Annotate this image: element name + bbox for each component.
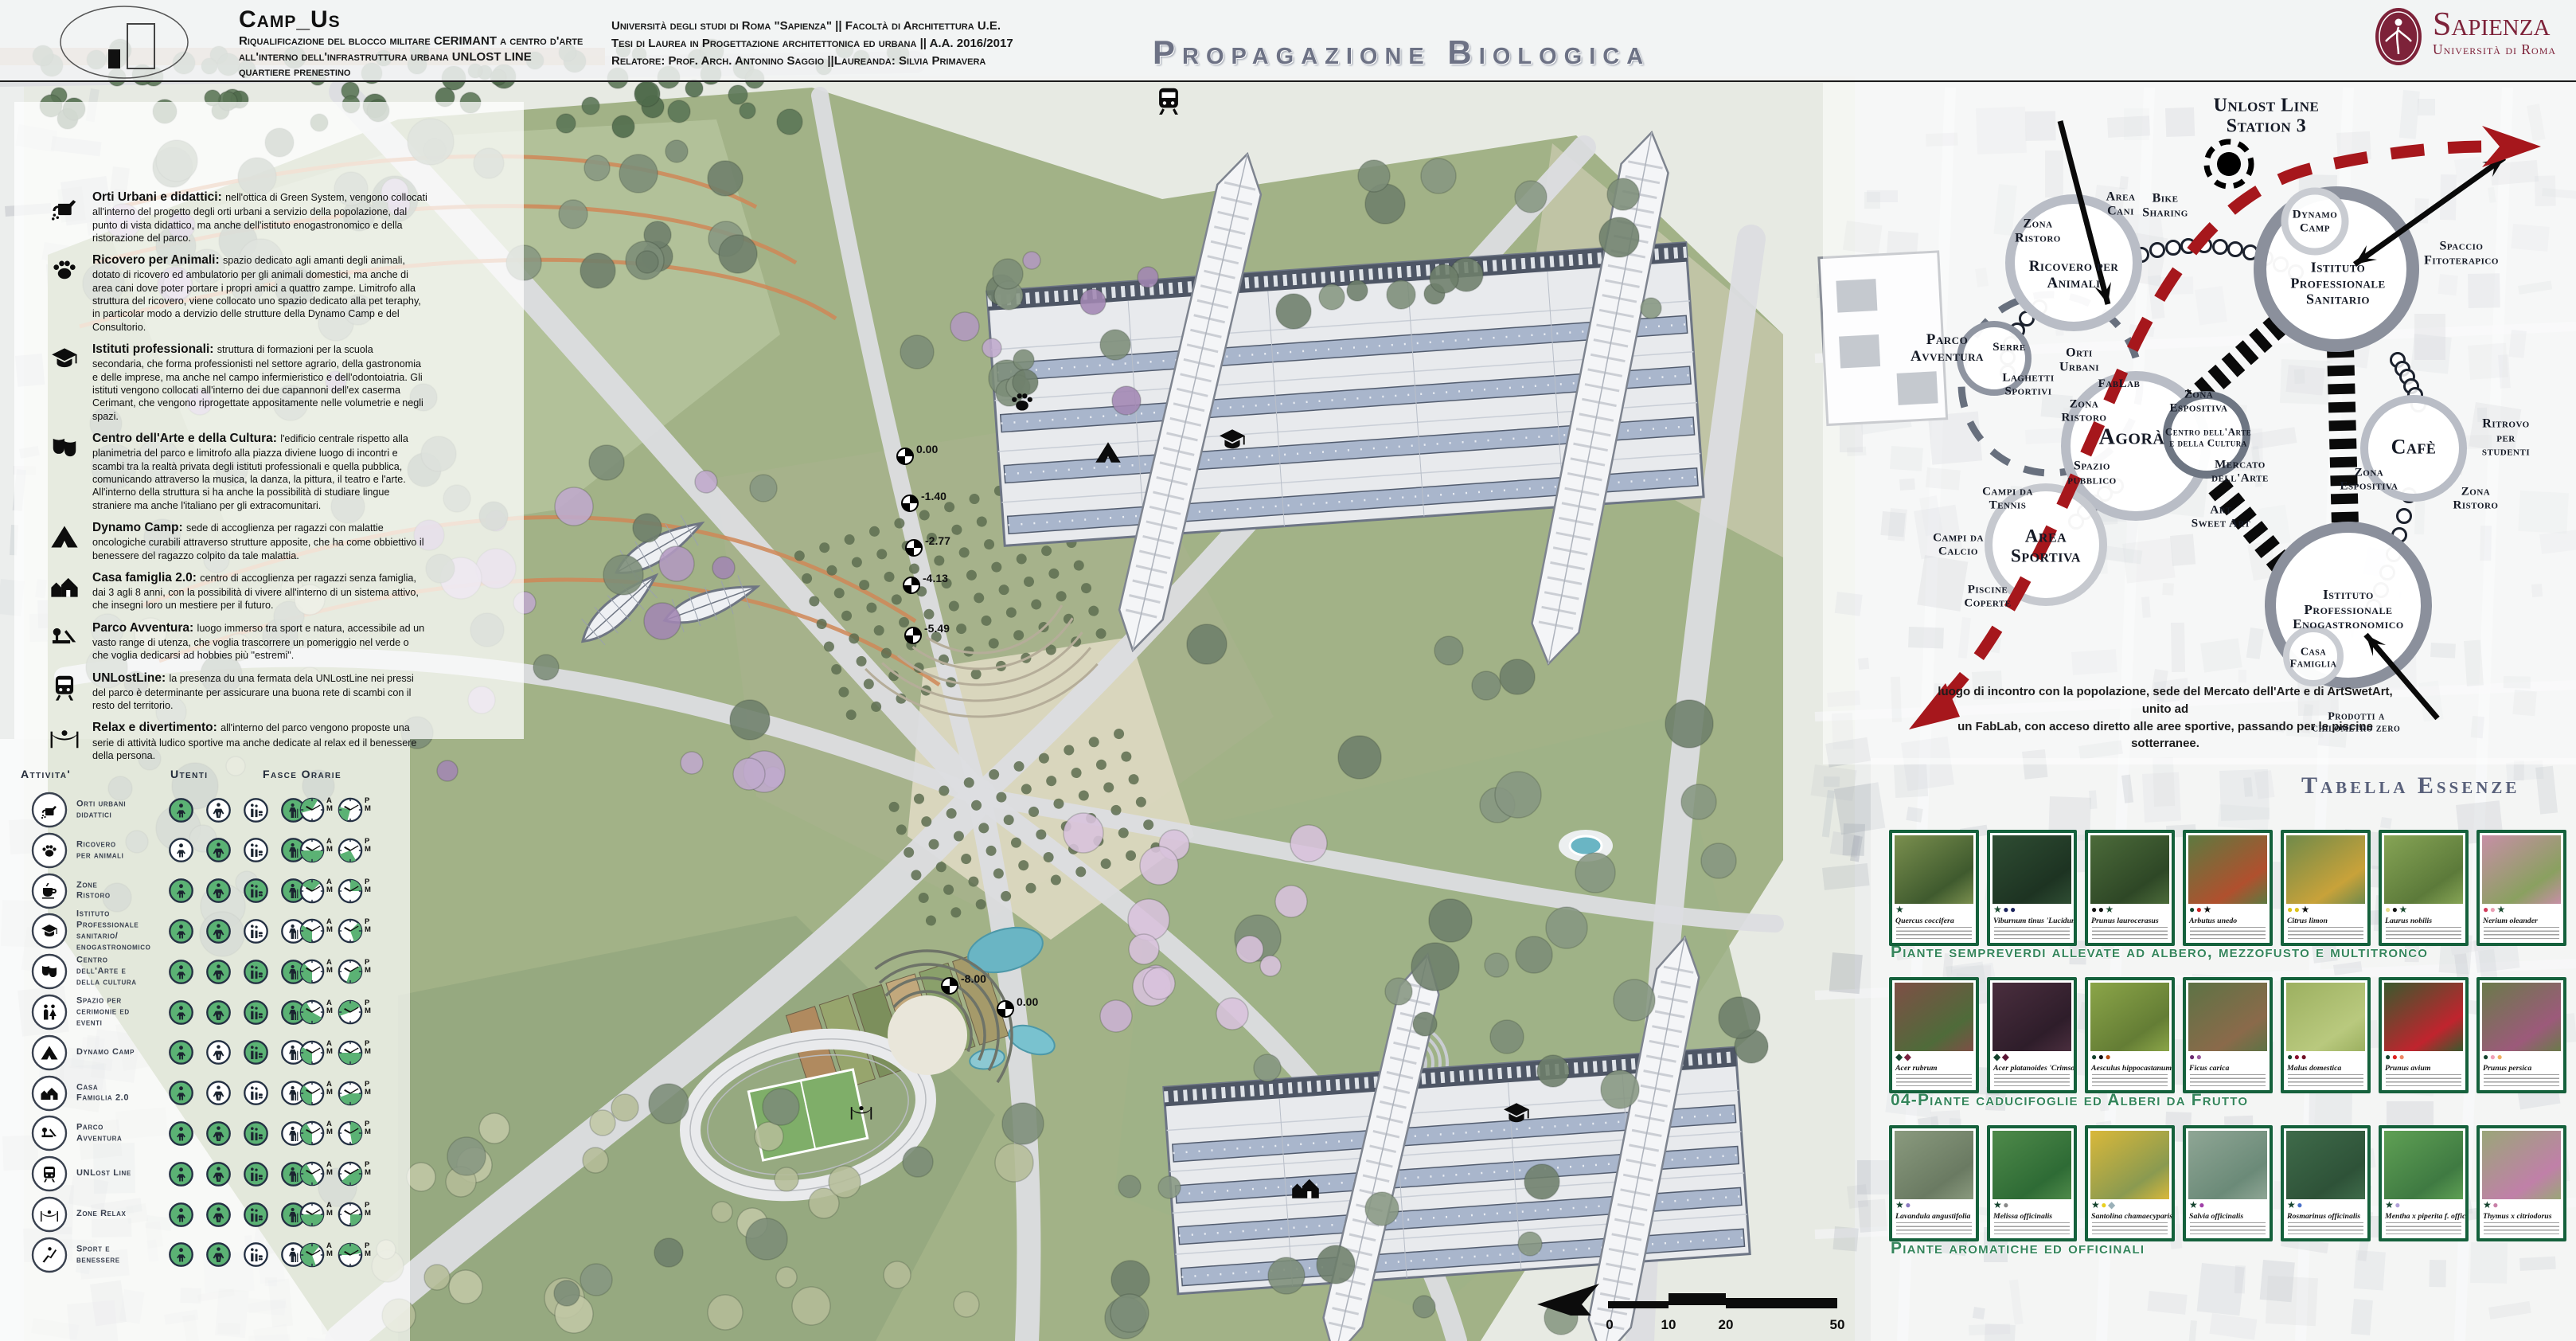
trait-icon: ● (2196, 904, 2203, 915)
pm-label: P M (365, 918, 371, 934)
plant-trait-icons: ●● (2186, 1051, 2270, 1064)
plant-photo (1992, 1131, 2071, 1199)
trait-icon: ● (2483, 904, 2490, 915)
plant-name: Arbutus unedo (2186, 917, 2270, 925)
trait-icon: ● (2492, 1199, 2500, 1210)
trait-icon: ● (2497, 1051, 2504, 1062)
trait-icon: ★ (2091, 1199, 2101, 1210)
am-clock-icon (299, 837, 326, 868)
tent-icon (30, 1034, 68, 1076)
trait-icon: ★ (2497, 904, 2507, 915)
plant-trait-icons: ★● (1990, 1199, 2074, 1212)
adult-user-icon (206, 1040, 231, 1069)
am-clock-icon (299, 999, 326, 1030)
plant-trait-icons: ●●★ (2088, 904, 2172, 917)
plant-details-text (1994, 1074, 2070, 1087)
cup-icon (30, 872, 68, 914)
am-label: A M (326, 1161, 333, 1177)
pm-label: P M (365, 1161, 371, 1177)
adult-user-icon (206, 838, 231, 866)
am-label: A M (326, 1120, 333, 1136)
family-user-icon (244, 1202, 268, 1231)
plant-card: ★●Thymus x citriodorus (2476, 1125, 2566, 1241)
legend-item: Istituti professionali: struttura di for… (49, 342, 427, 423)
plant-trait-icons: ◆◆ (1892, 1051, 1976, 1064)
trait-icon: ● (2294, 1051, 2301, 1062)
plant-trait-icons: ★● (1892, 1199, 1976, 1212)
pm-clock-icon (337, 1160, 364, 1191)
plant-name: Prunus avium (2382, 1064, 2465, 1073)
plant-details-text (2484, 927, 2559, 940)
trait-icon: ● (2091, 904, 2098, 915)
plant-details-text (2092, 1074, 2168, 1087)
scale-0: 0 (1606, 1317, 1613, 1333)
plant-trait-icons: ★●● (1990, 904, 2074, 917)
plant-photo (2188, 835, 2267, 904)
family-user-icon (244, 798, 268, 827)
legend-item-title: Parco Avventura: (92, 621, 197, 635)
scale-bar: 0 10 20 50 (1532, 1280, 1922, 1338)
plant-details-text (2092, 927, 2168, 940)
child-user-icon (169, 1242, 193, 1271)
am-label: A M (326, 797, 333, 813)
trait-icon: ● (2385, 1051, 2392, 1062)
am-clock-icon (299, 1201, 326, 1232)
sapienza-logo-icon (2374, 6, 2423, 67)
trait-icon: ● (2098, 1051, 2106, 1062)
legend-item-title: UNLostLine: (92, 671, 169, 685)
plant-photo (2482, 835, 2561, 904)
trait-icon: ◆ (1904, 1051, 1913, 1062)
activity-label: Ricovero per animali (76, 839, 166, 862)
sapienza-subtitle: Università di Roma (2433, 41, 2556, 58)
adult-user-icon (206, 1242, 231, 1271)
trait-icon: ★ (1993, 1199, 2003, 1210)
pm-label: P M (365, 999, 371, 1015)
pm-label: P M (365, 1081, 371, 1097)
am-clock-icon (299, 1160, 326, 1191)
child-user-icon (169, 960, 193, 988)
plant-trait-icons: ●●● (2382, 1051, 2465, 1064)
trait-icon: ★ (2483, 1199, 2492, 1210)
trait-icon: ● (2199, 1199, 2206, 1210)
plant-details-text (2484, 1222, 2559, 1235)
activity-label: UNLost Line (76, 1168, 166, 1179)
plant-trait-icons: ★● (2284, 1199, 2367, 1212)
legend-item-title: Orti Urbani e didattici: (92, 190, 225, 204)
plant-card: ★●◆Santolina chamaecyparissus (2085, 1125, 2175, 1241)
am-clock-icon (299, 958, 326, 989)
am-label: A M (326, 1242, 333, 1258)
university-line-2: Tesi di Laurea in Progettazione architet… (611, 35, 1185, 53)
adult-user-icon (206, 798, 231, 827)
plant-name: Salvia officinalis (2186, 1212, 2270, 1221)
plant-trait-icons: ●●● (2480, 1051, 2563, 1064)
plant-name: Aesculus hippocastanum (2088, 1064, 2172, 1073)
activity-label: Istituto Professionale sanitario/ enogas… (76, 909, 166, 953)
plant-trait-icons: ●●● (2088, 1051, 2172, 1064)
am-label: A M (326, 959, 333, 975)
svg-text:-2.77: -2.77 (925, 534, 950, 547)
pm-clock-icon (337, 1120, 364, 1151)
am-label: A M (326, 1040, 333, 1056)
trait-icon: ★ (1895, 904, 1905, 915)
pm-clock-icon (337, 958, 364, 989)
am-clock-icon (299, 1080, 326, 1111)
plant-card: ●●Ficus carica (2183, 977, 2273, 1093)
trait-icon: ◆ (2108, 1199, 2117, 1210)
plant-photo (1992, 983, 2071, 1051)
masks-icon (30, 952, 68, 995)
legend-item-body: Parco Avventura: luogo immerso tra sport… (92, 620, 427, 663)
trait-icon: ● (2490, 1051, 2497, 1062)
family-user-icon (244, 1040, 268, 1069)
trait-icon: ◆ (1993, 1051, 2002, 1062)
plant-photo (2090, 1131, 2169, 1199)
plant-photo (2090, 835, 2169, 904)
plant-photo (1895, 983, 1973, 1051)
pm-clock-icon (337, 1080, 364, 1111)
trait-icon: ◆ (1895, 1051, 1904, 1062)
trait-icon: ● (2297, 1199, 2304, 1210)
trait-icon: ● (2010, 904, 2017, 915)
plant-details-text (2386, 927, 2461, 940)
pm-label: P M (365, 1040, 371, 1056)
child-user-icon (169, 1000, 193, 1029)
plant-trait-icons: ●●★ (2284, 904, 2367, 917)
plant-card: ★●Melissa officinalis (1987, 1125, 2077, 1241)
family-user-icon (244, 960, 268, 988)
plant-card: ●●●Malus domestica (2281, 977, 2371, 1093)
plant-trait-icons: ★ (1892, 904, 1976, 917)
adult-user-icon (206, 960, 231, 988)
plant-name: Quercus coccifera (1892, 917, 1976, 925)
trait-icon: ● (2287, 904, 2294, 915)
plant-card: ★●Salvia officinalis (2183, 1125, 2273, 1241)
family-user-icon (244, 1242, 268, 1271)
am-label: A M (326, 838, 333, 854)
gradcap-icon (30, 912, 68, 954)
am-label: A M (326, 1081, 333, 1097)
houses-icon (49, 570, 81, 612)
plant-photo (2188, 1131, 2267, 1199)
legend-item: Dynamo Camp: sede di accoglienza per rag… (49, 520, 427, 562)
activity-label: Casa Famiglia 2.0 (76, 1082, 166, 1104)
activity-label: Zone Relax (76, 1209, 166, 1220)
train-icon (30, 1155, 68, 1197)
park-icon (30, 1114, 68, 1156)
paw-icon (49, 252, 81, 334)
plant-details-text (1896, 1222, 1972, 1235)
child-user-icon (169, 1081, 193, 1109)
trait-icon: ● (2385, 904, 2392, 915)
activity-label: Dynamo Camp (76, 1047, 166, 1058)
plant-name: Rosmarinus officinalis (2284, 1212, 2367, 1221)
plant-trait-icons: ★● (2480, 1199, 2563, 1212)
trait-icon: ● (2301, 1051, 2309, 1062)
trait-icon: ★ (2287, 1199, 2297, 1210)
legend-item-title: Casa famiglia 2.0: (92, 571, 200, 584)
pm-clock-icon (337, 837, 364, 868)
activities-header: Fasce Orarie (263, 768, 342, 780)
svg-text:-1.40: -1.40 (921, 490, 946, 502)
plant-name: Laurus nobilis (2382, 917, 2465, 925)
legend-item: Casa famiglia 2.0: centro di accoglienza… (49, 570, 427, 612)
plant-card: ★●Lavandula angustifolia (1889, 1125, 1979, 1241)
plant-name: Acer platanoides 'Crimson King' (1990, 1064, 2074, 1073)
university-line-3: Relatore: Prof. Arch. Antonino Saggio ||… (611, 53, 1185, 70)
plant-card: ●●●Aesculus hippocastanum (2085, 977, 2175, 1093)
adult-user-icon (206, 1081, 231, 1109)
am-label: A M (326, 918, 333, 934)
plant-photo (2188, 983, 2267, 1051)
plant-card: ★●Mentha x piperita f. officinalis (2379, 1125, 2469, 1241)
legend-item: UNLostLine: la presenza du una fermata d… (49, 670, 427, 713)
pm-clock-icon (337, 878, 364, 909)
trait-icon: ★ (2106, 904, 2115, 915)
plant-photo (2384, 835, 2463, 904)
trait-icon: ● (2189, 1051, 2196, 1062)
sapienza-name: Sapienza (2433, 10, 2556, 41)
gradcap-icon (49, 342, 81, 423)
am-clock-icon (299, 1120, 326, 1151)
trait-icon: ★ (2189, 1199, 2199, 1210)
plant-card: ●●★Citrus limon (2281, 830, 2371, 946)
plant-trait-icons: ●●● (2284, 1051, 2367, 1064)
legend-item-body: Centro dell'Arte e della Cultura: l'edif… (92, 431, 427, 512)
plant-trait-icons: ★●◆ (2088, 1199, 2172, 1212)
plant-details-text (2288, 1222, 2363, 1235)
child-user-icon (169, 1202, 193, 1231)
activities-table: Attivita'UtentiFasce Orarie Orti urbani … (14, 766, 392, 1308)
trait-icon: ★ (2399, 904, 2409, 915)
plant-trait-icons: ★● (2382, 1199, 2465, 1212)
legend-item: Orti Urbani e didattici: nell'ottica di … (49, 190, 427, 244)
trait-icon: ● (2003, 1199, 2010, 1210)
legend-item-body: Dynamo Camp: sede di accoglienza per rag… (92, 520, 427, 562)
paw-icon (30, 831, 68, 874)
plant-name: Viburnum tinus 'Lucidum' (1990, 917, 2074, 925)
family-user-icon (244, 1162, 268, 1190)
legend-item: Relax e divertimento: all'interno del pa… (49, 720, 427, 762)
family-user-icon (244, 838, 268, 866)
trait-icon: ★ (1993, 904, 2003, 915)
child-user-icon (169, 878, 193, 907)
plant-photo (2384, 1131, 2463, 1199)
plant-name: Mentha x piperita f. officinalis (2382, 1212, 2465, 1221)
legend-item-title: Ricovero per Animali: (92, 253, 223, 267)
plant-photo (2090, 983, 2169, 1051)
child-user-icon (169, 1121, 193, 1150)
plant-name: Prunus persica (2480, 1064, 2563, 1073)
plant-details-text (2484, 1074, 2559, 1087)
svg-text:0.00: 0.00 (1017, 995, 1038, 1008)
plant-photo (2286, 1131, 2365, 1199)
species-table-title: Tabella Essenze (2301, 772, 2519, 800)
trait-icon: ● (2483, 1051, 2490, 1062)
am-clock-icon (299, 917, 326, 948)
pm-label: P M (365, 878, 371, 894)
plant-photo (2384, 983, 2463, 1051)
plant-details-text (2288, 1074, 2363, 1087)
plant-name: Ficus carica (2186, 1064, 2270, 1073)
sport-icon (30, 1236, 68, 1278)
activity-label: Parco Avventura (76, 1123, 166, 1145)
plant-details-text (2092, 1222, 2168, 1235)
plant-card: ★●Rosmarinus officinalis (2281, 1125, 2371, 1241)
trait-icon: ● (2098, 904, 2106, 915)
legend-item-body: Casa famiglia 2.0: centro di accoglienza… (92, 570, 427, 612)
child-user-icon (169, 798, 193, 827)
legend-item-body: Ricovero per Animali: spazio dedicato ag… (92, 252, 427, 334)
plant-trait-icons: ★● (2186, 1199, 2270, 1212)
pm-clock-icon (337, 796, 364, 827)
trait-icon: ● (2399, 1051, 2406, 1062)
species-row-caption-3: Piante aromatiche ed officinali (1891, 1239, 2145, 1258)
legend-item: Parco Avventura: luogo immerso tra sport… (49, 620, 427, 663)
plant-name: Acer rubrum (1892, 1064, 1976, 1073)
plant-trait-icons: ●●★ (2382, 904, 2465, 917)
am-clock-icon (299, 1039, 326, 1070)
header-divider (0, 80, 2576, 82)
adult-user-icon (206, 1000, 231, 1029)
plant-trait-icons: ●●★ (2186, 904, 2270, 917)
svg-text:0.00: 0.00 (916, 443, 938, 455)
legend-item-title: Centro dell'Arte e della Cultura: (92, 432, 280, 445)
legend-item-title: Istituti professionali: (92, 342, 217, 356)
child-user-icon (169, 1162, 193, 1190)
family-user-icon (244, 1121, 268, 1150)
trait-icon: ● (1905, 1199, 1912, 1210)
pm-clock-icon (337, 1039, 364, 1070)
species-table: Tabella Essenze Piante sempreverdi allev… (1889, 764, 2576, 1341)
plant-details-text (2386, 1222, 2461, 1235)
train-icon (49, 670, 81, 713)
adult-user-icon (206, 1202, 231, 1231)
plant-card: ●●★Prunus laurocerasus (2085, 830, 2175, 946)
plant-name: Nerium oleander (2480, 917, 2563, 925)
pm-label: P M (365, 1202, 371, 1218)
pm-label: P M (365, 1120, 371, 1136)
child-user-icon (169, 838, 193, 866)
child-user-icon (169, 919, 193, 948)
trait-icon: ● (2392, 1051, 2399, 1062)
plant-card: ●●●Prunus persica (2476, 977, 2566, 1093)
masks-icon (49, 431, 81, 512)
trait-icon: ● (2392, 904, 2399, 915)
family-user-icon (244, 1081, 268, 1109)
trait-icon: ● (2294, 904, 2301, 915)
pm-clock-icon (337, 917, 364, 948)
watering-icon (30, 791, 68, 833)
pm-label: P M (365, 838, 371, 854)
park-icon (49, 620, 81, 663)
couple-icon (30, 993, 68, 1035)
activity-label: Sport e benessere (76, 1244, 166, 1266)
plant-name: Santolina chamaecyparissus (2088, 1212, 2172, 1221)
plant-card: ●●★Laurus nobilis (2379, 830, 2469, 946)
presentation-board: 0.00 -1.40 -2.77 -4.13 -5.49 -8.00 0.0 (0, 0, 2576, 1341)
plant-details-text (2190, 1074, 2266, 1087)
plant-details-text (1896, 927, 1972, 940)
program-legend: Orti Urbani e didattici: nell'ottica di … (49, 190, 427, 770)
plant-card: ●●★Arbutus unedo (2183, 830, 2273, 946)
legend-item: Ricovero per Animali: spazio dedicato ag… (49, 252, 427, 334)
svg-text:-5.49: -5.49 (924, 622, 950, 635)
plant-photo (1895, 835, 1973, 904)
plant-trait-icons: ◆◆ (1990, 1051, 2074, 1064)
activity-label: Zone Ristoro (76, 880, 166, 902)
plant-details-text (2288, 927, 2363, 940)
trait-icon: ● (2003, 904, 2010, 915)
pm-clock-icon (337, 999, 364, 1030)
plant-photo (2482, 983, 2561, 1051)
am-label: A M (326, 1202, 333, 1218)
legend-item: Centro dell'Arte e della Cultura: l'edif… (49, 431, 427, 512)
plant-photo (2286, 983, 2365, 1051)
legend-item-body: Istituti professionali: struttura di for… (92, 342, 427, 423)
plant-details-text (1994, 1222, 2070, 1235)
plant-photo (1895, 1131, 1973, 1199)
scale-50: 50 (1830, 1317, 1845, 1333)
trait-icon: ● (2395, 1199, 2402, 1210)
activity-label: Centro dell'Arte e della cultura (76, 956, 166, 988)
plant-card: ●●★Nerium oleander (2476, 830, 2566, 946)
plant-photo (1992, 835, 2071, 904)
plant-name: Citrus limon (2284, 917, 2367, 925)
adult-user-icon (206, 878, 231, 907)
adult-user-icon (206, 919, 231, 948)
activities-header: Utenti (170, 768, 208, 780)
am-clock-icon (299, 878, 326, 909)
plant-name: Thymus x citriodorus (2480, 1212, 2563, 1221)
svg-text:-8.00: -8.00 (961, 972, 986, 985)
family-user-icon (244, 919, 268, 948)
pm-label: P M (365, 959, 371, 975)
trait-icon: ● (2091, 1051, 2098, 1062)
trait-icon: ● (2189, 904, 2196, 915)
plant-details-text (1994, 927, 2070, 940)
trait-icon: ★ (2301, 904, 2311, 915)
plant-photo (2482, 1131, 2561, 1199)
trait-icon: ★ (2385, 1199, 2395, 1210)
plant-trait-icons: ●●★ (2480, 904, 2563, 917)
plant-details-text (2386, 1074, 2461, 1087)
plant-card: ◆◆Acer platanoides 'Crimson King' (1987, 977, 2077, 1093)
trait-icon: ◆ (2002, 1051, 2011, 1062)
legend-item-title: Relax e divertimento: (92, 721, 221, 734)
am-clock-icon (299, 796, 326, 827)
pm-label: P M (365, 797, 371, 813)
activity-label: Orti urbani didattici (76, 799, 166, 821)
plant-card: ●●●Prunus avium (2379, 977, 2469, 1093)
am-clock-icon (299, 1241, 326, 1273)
plant-name: Melissa officinalis (1990, 1212, 2074, 1221)
plant-photo (2286, 835, 2365, 904)
adult-user-icon (206, 1162, 231, 1190)
adult-user-icon (206, 1121, 231, 1150)
child-user-icon (169, 1040, 193, 1069)
plant-card: ★●●Viburnum tinus 'Lucidum' (1987, 830, 2077, 946)
legend-item-body: Relax e divertimento: all'interno del pa… (92, 720, 427, 762)
scale-20: 20 (1719, 1317, 1734, 1333)
trait-icon: ● (2287, 1051, 2294, 1062)
am-label: A M (326, 999, 333, 1015)
plant-name: Malus domestica (2284, 1064, 2367, 1073)
species-row-caption-2: 04-Piante caducifoglie ed Alberi da Frut… (1891, 1091, 2248, 1110)
plant-name: Prunus laurocerasus (2088, 917, 2172, 925)
pm-label: P M (365, 1242, 371, 1258)
